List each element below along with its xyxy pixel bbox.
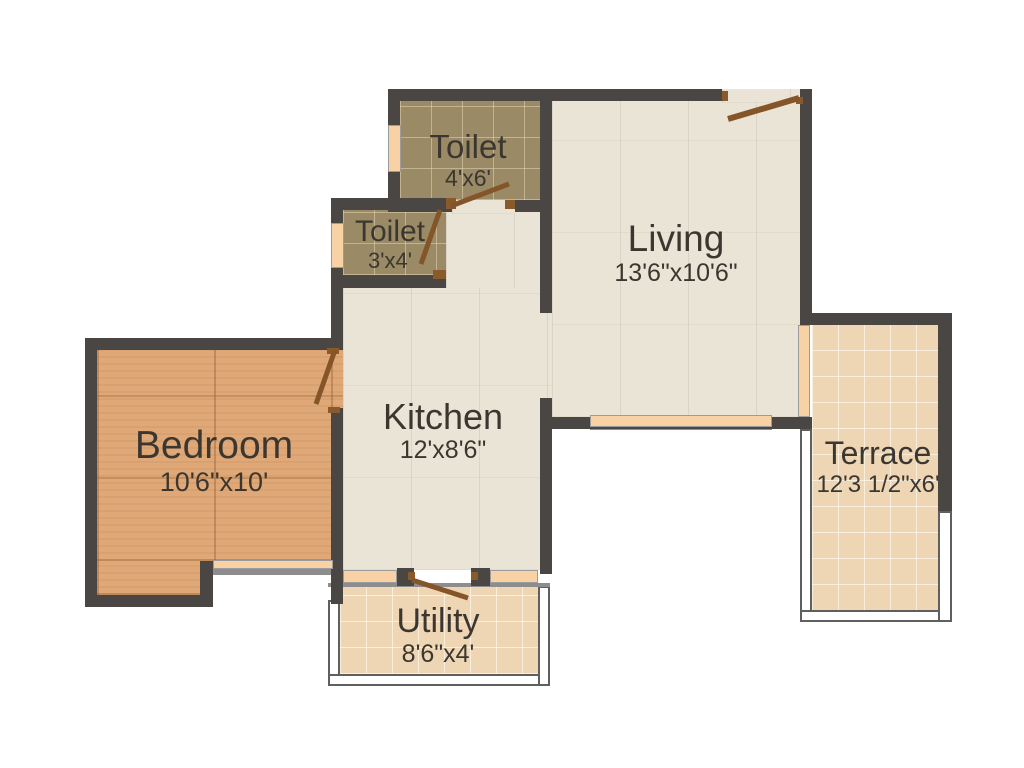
toilet-small-door-jamb [433, 270, 446, 279]
bedroom-door-jamb-top [327, 348, 339, 354]
bedroom-north-wall [85, 338, 343, 350]
north-wall [388, 89, 722, 101]
utility-right-railing [538, 586, 550, 686]
toilet-top-dims: 4'x6' [429, 165, 506, 191]
utility-label: Utility 8'6"x4' [396, 604, 479, 668]
toilet-top-door-jamb-left [446, 198, 456, 209]
bedroom-dims: 10'6"x10' [135, 467, 293, 498]
terrace-dims: 12'3 1/2"x6' [816, 471, 939, 499]
utility-door-jamb-left [408, 572, 415, 580]
toilet-small-south-wall [331, 275, 446, 288]
bedroom-window [213, 560, 333, 569]
living-label: Living 13'6"x10'6" [614, 220, 737, 288]
living-entry-gap-floor [722, 89, 800, 103]
utility-name: Utility [396, 604, 479, 640]
utility-dims: 8'6"x4' [396, 640, 479, 669]
living-east-wall [800, 89, 812, 313]
toilet-small-label: Toilet 3'x4' [355, 216, 425, 273]
kitchen-name: Kitchen [383, 398, 503, 436]
kitchen-window-left [343, 570, 397, 583]
bedroom-door-jamb-bottom [328, 407, 340, 413]
bedroom-name: Bedroom [135, 426, 293, 467]
utility-bottom-railing [328, 674, 550, 686]
terrace-name: Terrace [816, 437, 939, 471]
divider-post [540, 398, 552, 429]
bedroom-west-wall [85, 350, 97, 607]
toilet-small-window [331, 223, 344, 268]
toilet-small-north-wall [331, 198, 446, 210]
toilet-top-door-jamb-right [505, 200, 515, 209]
terrace-right-railing [938, 511, 952, 622]
toilet-small-name: Toilet [355, 216, 425, 248]
terrace-east-wall [938, 313, 952, 511]
bedroom-window-post [200, 561, 213, 607]
toilet-top-label: Toilet 4'x6' [429, 130, 506, 191]
bedroom-floor-extension [97, 561, 200, 595]
terrace-label: Terrace 12'3 1/2"x6' [816, 437, 939, 498]
terrace-north-wall [800, 313, 952, 325]
utility-window-sill [328, 583, 550, 587]
entry-door-jamb-left [722, 91, 728, 101]
kitchen-east-wall [540, 429, 552, 574]
kitchen-living-divider-wall [540, 101, 552, 313]
bedroom-south-wall [85, 595, 213, 607]
toilet-small-dims: 3'x4' [355, 248, 425, 273]
bedroom-label: Bedroom 10'6"x10' [135, 426, 293, 498]
terrace-left-railing [800, 429, 812, 622]
bedroom-window-sill [213, 568, 333, 575]
toilet-top-window [388, 125, 401, 172]
kitchen-label: Kitchen 12'x8'6" [383, 398, 503, 465]
living-window [590, 415, 772, 427]
bedroom-east-wall [331, 408, 343, 604]
kitchen-window-right [490, 570, 538, 583]
living-dims: 13'6"x10'6" [614, 259, 737, 288]
utility-door-jamb-right [471, 572, 478, 580]
living-name: Living [614, 220, 737, 259]
terrace-bottom-railing [800, 610, 952, 622]
entry-door-jamb-right [796, 97, 803, 104]
floor-plan: Toilet 4'x6' Toilet 3'x4' Living 13'6"x1… [0, 0, 1024, 768]
terrace-window [798, 325, 810, 417]
kitchen-dims: 12'x8'6" [383, 436, 503, 465]
toilet-top-name: Toilet [429, 130, 506, 165]
kitchen-passage-floor [446, 212, 552, 292]
